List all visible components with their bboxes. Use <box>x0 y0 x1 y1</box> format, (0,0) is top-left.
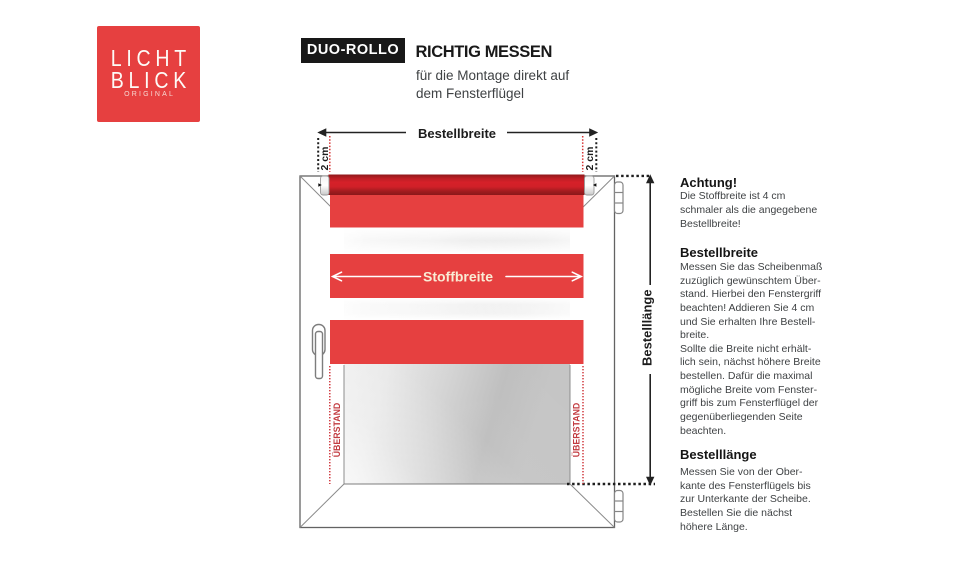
svg-text:ÜBERSTAND: ÜBERSTAND <box>332 403 342 458</box>
svg-text:Bestelllänge: Bestelllänge <box>640 289 655 366</box>
svg-text:Bestellbreite: Bestellbreite <box>418 126 496 141</box>
svg-text:Stoffbreite: Stoffbreite <box>423 269 493 285</box>
svg-text:ÜBERSTAND: ÜBERSTAND <box>572 403 582 458</box>
svg-text:2 cm: 2 cm <box>319 147 331 171</box>
svg-text:2 cm: 2 cm <box>584 147 596 171</box>
